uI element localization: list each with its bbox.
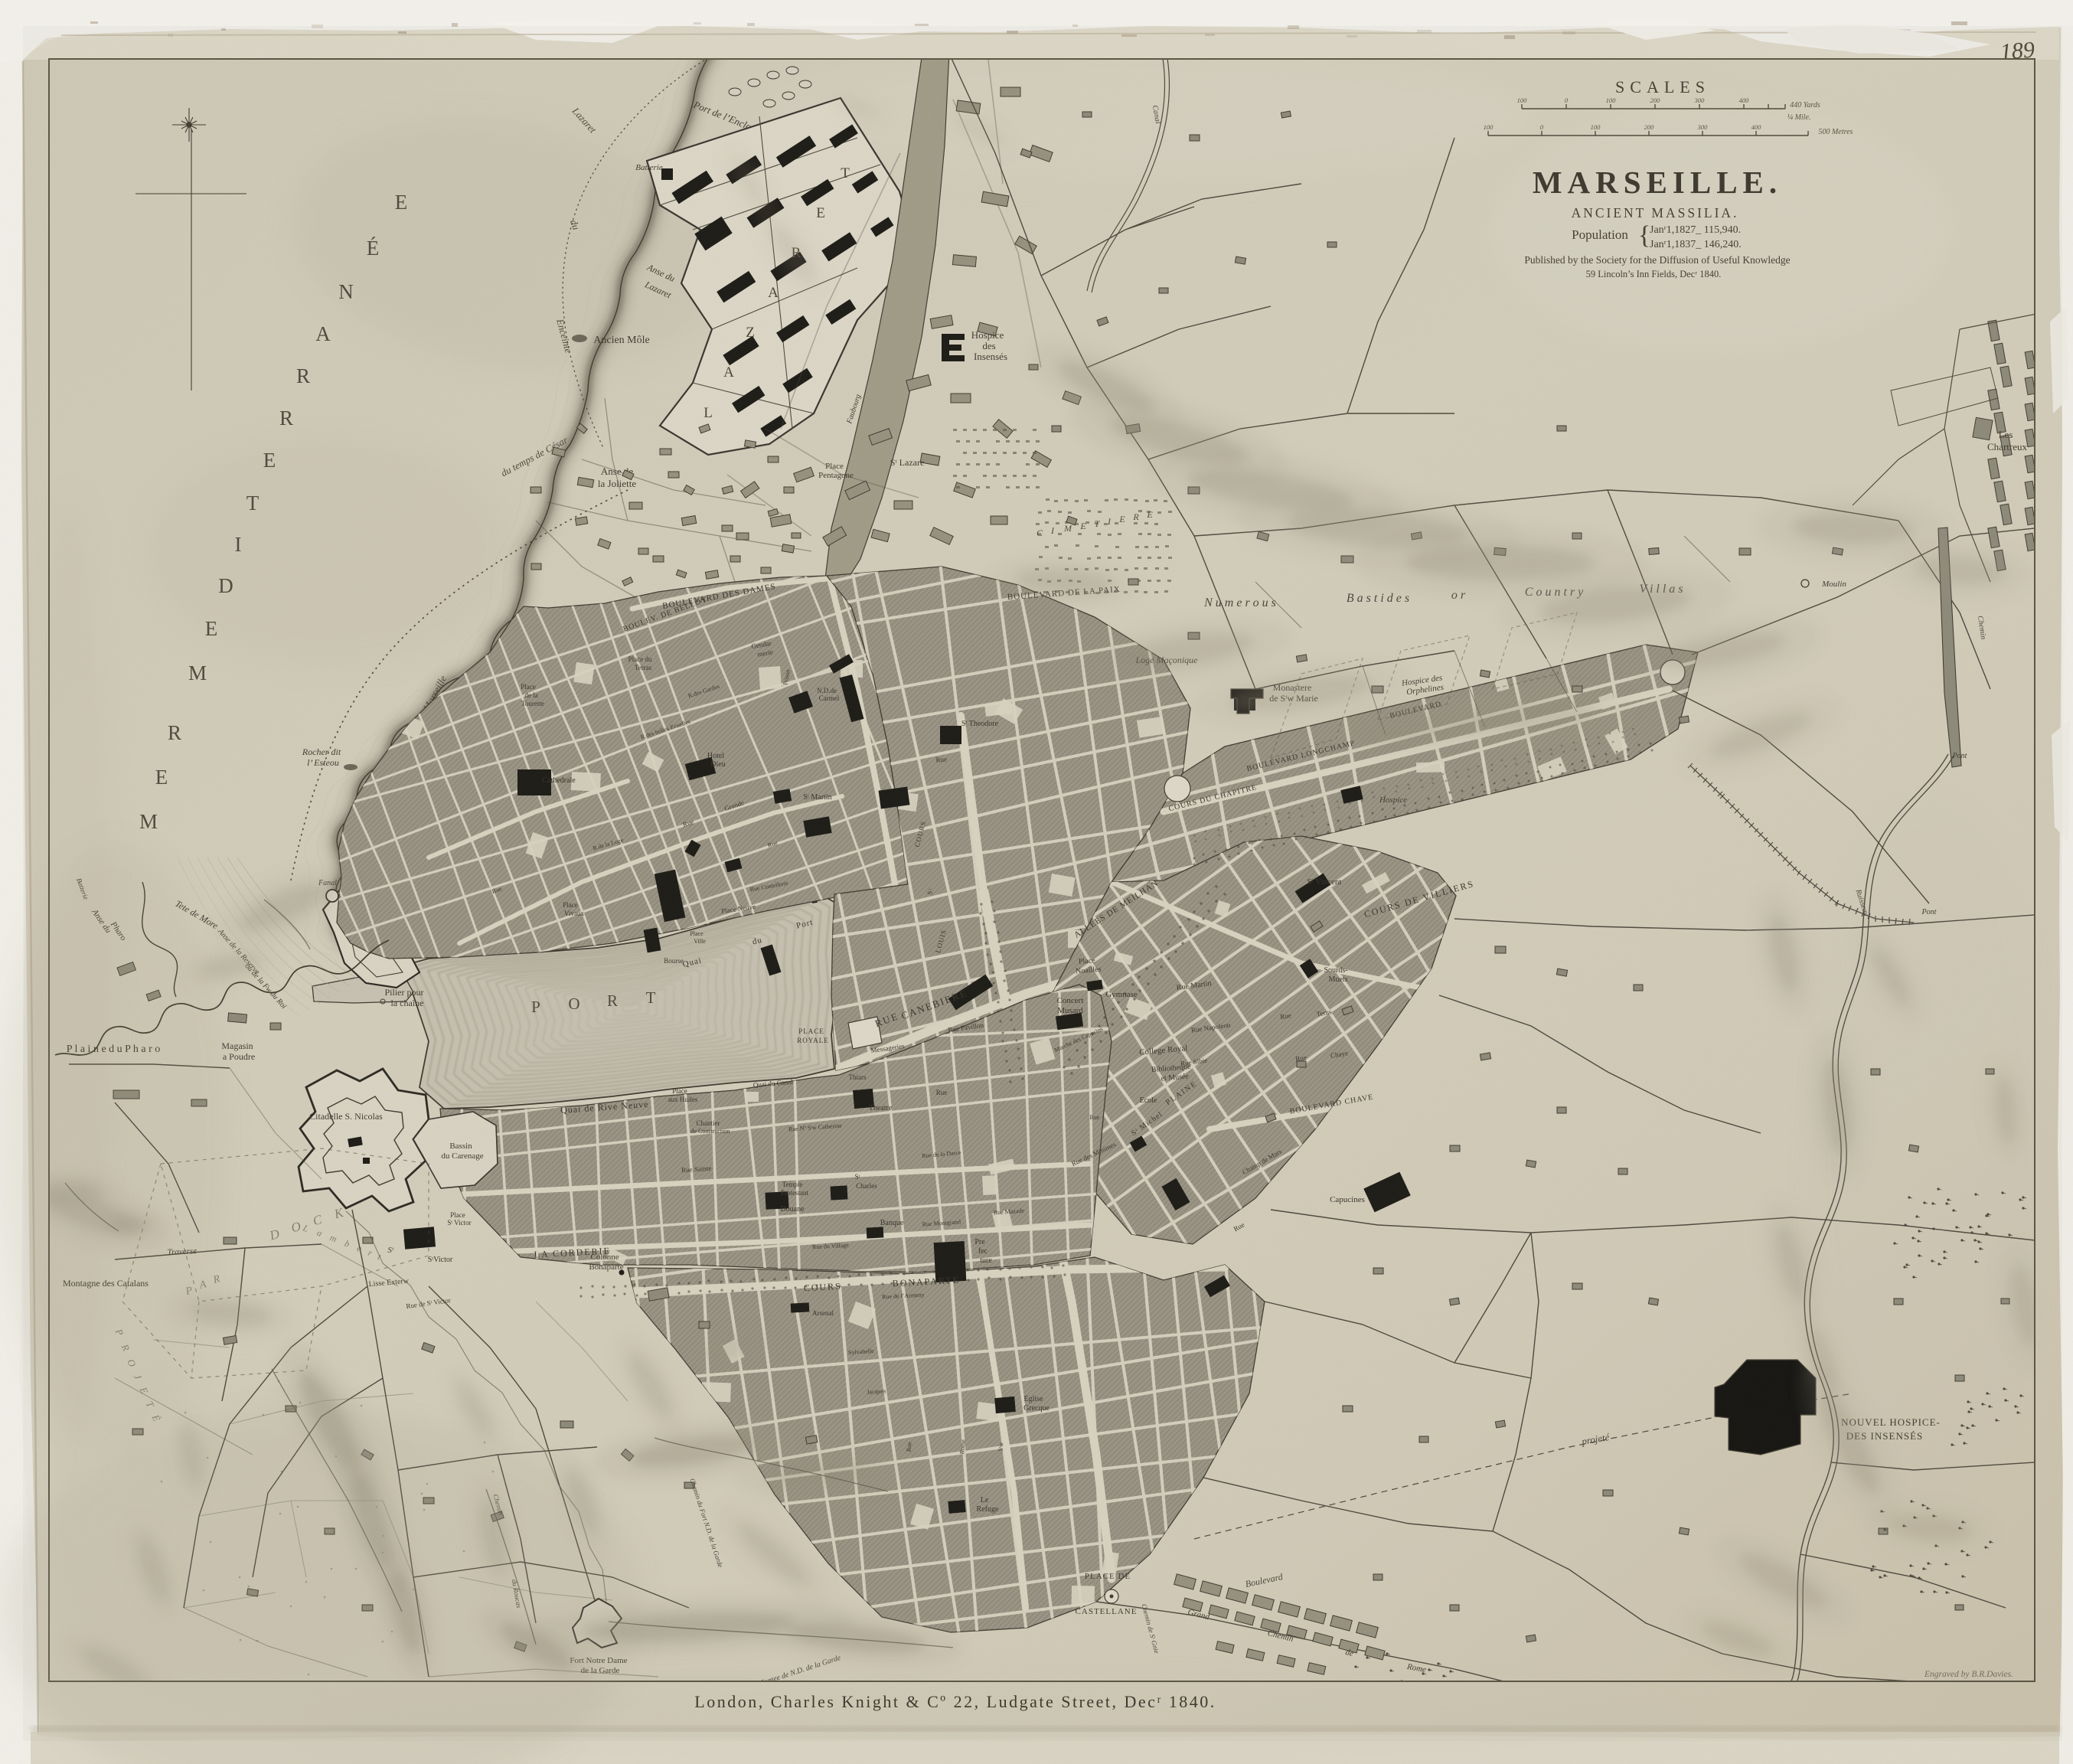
svg-text:Engraved by B.R.Davies.: Engraved by B.R.Davies.: [1924, 1670, 2013, 1679]
svg-text:London, Charles Knight & Cº 22: London, Charles Knight & Cº 22, Ludgate …: [694, 1692, 1216, 1711]
